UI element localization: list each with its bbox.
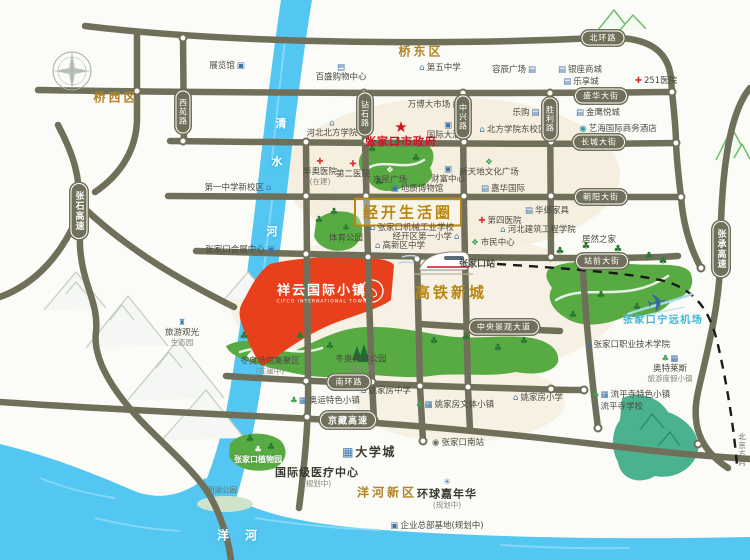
lexiang-city-icon-glyph: ▤	[563, 78, 571, 87]
hebei-north-college-label: 河北北方学院	[306, 128, 357, 138]
olympic-town-text: 奥运特色小镇	[309, 396, 360, 406]
xintiandi-culture-plaza: ❖新天地文化广场	[459, 159, 519, 178]
juran-home: 居然之家	[582, 235, 616, 245]
juran-home-label: 居然之家	[582, 235, 616, 245]
yaojiafang-primary-icon-glyph: ⌂	[513, 394, 518, 403]
ningyuan-airport-text: 张家口宁远机场	[623, 315, 704, 327]
tourism-eco-garden-text: 旅游观光生态园	[165, 328, 199, 347]
yinzuo-mall: ▤银座商城	[558, 65, 602, 75]
liupingsi-town: ♣▦流平寺特色小镇	[592, 390, 670, 400]
no2-hospital-icon-glyph: ✚	[349, 161, 356, 170]
shenghua-street: 盛华大街	[575, 89, 627, 104]
yaojiafang-culture-town-icon-glyph: ▦	[425, 401, 433, 410]
geology-museum-icon: ▣	[391, 185, 399, 194]
hospital-251-icon: ✚	[635, 77, 642, 86]
intl-hotel-icon: ▣	[444, 122, 452, 131]
rongchen-plaza-text: 容辰广场	[492, 65, 526, 75]
citizen-square-icon-glyph: ❖	[386, 167, 394, 176]
map-labels-layer: 祥云国际小镇 CIFCO INTERNATIONAL TOWN ✈ 桥西区桥东区…	[0, 0, 750, 560]
yaojiafang-primary: ⌂姚家房小学	[513, 393, 563, 403]
yihai-hotel-icon-glyph: ◉	[579, 125, 586, 134]
winter-olympic-forest-park: 冬奥森林公园(在建中)	[335, 354, 386, 373]
university-city-text: 大学城	[355, 445, 396, 459]
outlets-resort-town-icon-glyph: ♣	[662, 355, 670, 364]
liupingsi-school-label: 流平寺学校	[600, 402, 643, 412]
intl-medical-center-sub: (规划中)	[303, 479, 331, 488]
no4-hospital-icon: ✚	[478, 217, 485, 226]
shengli-road: 胜利路	[543, 98, 558, 141]
university-city-icon-glyph: ▦	[342, 446, 353, 458]
hebei-north-college: ⌂河北北方学院	[306, 120, 357, 139]
airplane-icon: ✈	[645, 289, 670, 317]
north-college-east-campus-icon-glyph: ⌂	[480, 126, 485, 135]
wealth-center-label: 财富中心	[431, 174, 465, 184]
wanbo-market-text: 万博大市场	[408, 100, 451, 110]
xintiandi-culture-plaza-icon-glyph: ❖	[485, 159, 493, 168]
river-label: 河	[245, 527, 259, 544]
jinying-mall-label: 金鹰悦城	[586, 108, 620, 118]
cifco-town-label: 祥云国际小镇 CIFCO INTERNATIONAL TOWN	[277, 280, 368, 305]
tree-icon: ♣	[520, 337, 529, 347]
parkson-mall-label: 百盛购物中心	[315, 72, 366, 82]
jinying-mall-icon-glyph: ▤	[576, 109, 584, 118]
river-label: 水	[272, 153, 283, 169]
zhanqian-street: 站前大街	[576, 254, 628, 269]
hospital-251-label: 251医院	[644, 76, 677, 86]
tree-icon: ♣	[494, 344, 503, 354]
yaojiafang-middle-school: ⌂姚家房中学	[361, 386, 411, 396]
citizen-center-text: 市民中心	[481, 238, 515, 248]
xiyuan-road: 西苑路	[176, 91, 191, 134]
yihai-hotel-label: 艺海国际商务酒店	[589, 124, 657, 134]
huaao-hospital-icon: ✚	[316, 158, 323, 167]
no2-hospital-icon: ✚	[349, 161, 356, 170]
liupingsi-town-icon: ♣▦	[592, 391, 609, 400]
tree-icon: ♣	[246, 435, 255, 445]
exhibition-hall-icon-glyph: ▣	[237, 62, 245, 71]
exhibition-hall: 展览馆▣	[209, 61, 245, 71]
tree-icon: ♣	[430, 337, 439, 347]
zjk-botanical-garden-icon-glyph: ♣	[254, 446, 262, 455]
no4-hospital-icon-glyph: ✚	[478, 217, 485, 226]
zjk-south-station-label: 张家口南站	[441, 438, 484, 448]
rongchen-plaza: 容辰广场▤	[492, 65, 536, 75]
yihai-hotel-icon: ◉	[579, 125, 586, 134]
beihuan-road: 北环路	[582, 31, 625, 46]
zjk-convention-center: 张家口会展中心▣	[205, 245, 275, 255]
jingkai-no1-primary-icon: ⌂	[454, 233, 459, 242]
outlets-resort-town-icon-glyph: ▦	[670, 355, 678, 364]
jiahua-international-text: 嘉华国际	[491, 184, 525, 194]
machinery-industry-school-icon: ⌂	[370, 224, 375, 233]
liupingsi-town-icon-glyph: ▦	[601, 391, 609, 400]
enterprise-hq-base-label: 企业总部基地(规划中)	[400, 521, 483, 531]
beijing-direction: 北京方向	[738, 433, 747, 467]
sports-park-icon-glyph: ♣	[342, 225, 350, 234]
wealth-center: ▣财富中心	[431, 166, 465, 185]
qiaoxi-district: 桥西区	[93, 89, 138, 106]
tree-icon: ♣	[633, 303, 642, 313]
jiahua-international-label: 嘉华国际	[491, 184, 525, 194]
enterprise-hq-base-icon: ▣	[390, 522, 398, 531]
zjk-botanical-garden-label: 张家口植物园	[234, 454, 282, 464]
no5-middle-school-icon: ⌂	[419, 64, 424, 73]
zjk-railway-station-label: 张家口站	[459, 260, 495, 271]
nanhuan-road: 南环路	[328, 375, 371, 390]
zjk-south-station-text: 张家口南站	[441, 438, 484, 448]
zjk-botanical-garden-icon: ♣	[254, 446, 262, 455]
tree-icon: ♣	[659, 257, 668, 267]
hsr-new-town: 高铁新城	[415, 282, 487, 303]
citizen-center-icon: ❖	[471, 239, 479, 248]
zjk-vocational-college-icon: ⌂	[586, 341, 591, 350]
zjk-botanical-garden-text: 张家口植物园	[234, 454, 282, 464]
wanbo-market-label: 万博大市场	[408, 100, 451, 110]
ningyuan-airport: 张家口宁远机场	[623, 315, 704, 327]
wanbo-market: 万博大市场▤	[408, 100, 461, 110]
tree-icon: ♣	[412, 154, 421, 164]
hebei-architecture-college-label: 河北建筑工程学院	[508, 225, 576, 235]
liupingsi-town-label: 流平寺特色小镇	[611, 390, 671, 400]
chaoyang-street: 朝阳大街	[575, 190, 627, 205]
outlets-resort-town-label: 奥特莱斯	[653, 364, 687, 374]
university-city-icon: ▦	[342, 446, 353, 458]
outlets-resort-town-text: 奥特莱斯旅游度假小镇	[648, 364, 693, 383]
river-label: 河	[267, 223, 278, 239]
tourism-eco-garden: ♜旅游观光生态园	[165, 319, 199, 347]
zjk-railway-station: 张家口站	[459, 260, 495, 271]
winter-olympic-venues: 冬奥场馆集聚区(在建中)	[240, 356, 300, 375]
xintiandi-culture-plaza-label: 新天地文化广场	[459, 167, 519, 177]
hebei-architecture-college-text: 河北建筑工程学院	[508, 225, 576, 235]
sports-park-text: 体育公园	[329, 233, 363, 243]
liupingsi-town-icon-glyph: ♣	[592, 391, 600, 400]
north-college-east-campus-text: 北方学院东校区	[487, 125, 547, 135]
olympic-town-icon-glyph: ♣	[290, 397, 298, 406]
jinying-mall: ▤金鹰悦城	[576, 108, 620, 118]
hebei-architecture-college-icon: ⌂	[500, 226, 505, 235]
yihai-hotel: ◉艺海国际商务酒店	[579, 124, 656, 134]
tourism-eco-garden-icon: ♜	[178, 319, 186, 328]
winter-olympic-venues-label: 冬奥场馆集聚区	[240, 356, 300, 366]
sports-park: ♣体育公园	[329, 225, 363, 244]
liupingsi-school-icon-glyph: ⌂	[593, 403, 598, 412]
tree-icon: ♣	[556, 247, 565, 257]
minghu-park: 明湖公园	[207, 486, 237, 495]
tree-icon: ♣	[645, 252, 654, 262]
central-landscape-avenue: 中央景观大道	[469, 320, 539, 335]
citizen-center: ❖市民中心	[471, 238, 515, 248]
citizen-center-icon-glyph: ❖	[471, 239, 479, 248]
cifco-town-english: CIFCO INTERNATIONAL TOWN	[277, 300, 368, 305]
zjk-vocational-college-text: 张家口职业技术学院	[593, 340, 670, 350]
huaye-furniture-icon: ▤	[525, 207, 533, 216]
gaoxin-middle-school-label: 高新区中学	[382, 241, 425, 251]
lexiang-city: ▤乐享城	[563, 77, 599, 87]
tree-icon: ♣	[326, 342, 335, 352]
zjk-convention-center-icon-glyph: ▣	[267, 246, 275, 255]
huaye-furniture: ▤华邺家具	[525, 206, 569, 216]
gaoxin-middle-school: ⌂高新区中学	[375, 241, 425, 251]
huaao-hospital: ✚华奥医院(在建)	[303, 158, 337, 186]
hospital-251-text: 251医院	[644, 76, 677, 86]
intl-medical-center: 国际级医疗中心(规划中)	[275, 466, 359, 488]
yaojiafang-primary-text: 姚家房小学	[520, 393, 563, 403]
beijing-direction-text: 北京方向	[738, 433, 747, 467]
zjk-south-station-icon: ◉	[432, 439, 439, 448]
zhangshi-expressway: 张石高速	[71, 183, 88, 239]
tourism-eco-garden-icon-glyph: ♜	[178, 319, 186, 328]
outlets-resort-town-sub: 旅游度假小镇	[648, 374, 693, 383]
geology-museum-label: 地质博物馆	[401, 184, 444, 194]
jinying-mall-text: 金鹰悦城	[586, 108, 620, 118]
no5-middle-school-icon-glyph: ⌂	[419, 64, 424, 73]
no1-middle-school-new-campus-icon: ⌂	[266, 184, 271, 193]
juran-home-text: 居然之家	[582, 235, 616, 245]
huaao-hospital-text: 华奥医院(在建)	[303, 167, 337, 186]
no1-middle-school-new-campus: 第一中学新校区⌂	[205, 183, 272, 193]
tesco-icon: ▤	[531, 109, 539, 118]
tesco: 乐购▤	[512, 108, 539, 118]
hebei-north-college-text: 河北北方学院	[306, 128, 357, 138]
geology-museum: ▣地质博物馆	[391, 184, 444, 194]
intl-medical-center-label: 国际级医疗中心	[275, 466, 359, 479]
tree-icon: ♣	[296, 332, 305, 342]
no1-middle-school-new-campus-text: 第一中学新校区	[205, 183, 265, 193]
tree-icon: ♣	[597, 291, 606, 301]
geology-museum-icon-glyph: ▣	[391, 185, 399, 194]
tesco-label: 乐购	[512, 108, 529, 118]
olympic-town: ♣▦奥运特色小镇	[290, 396, 360, 406]
no5-middle-school: ⌂第五中学	[419, 63, 460, 73]
lexiang-city-label: 乐享城	[573, 77, 599, 87]
liupingsi-school: ⌂流平寺学校	[593, 402, 643, 412]
yaojiafang-culture-town: ♣▦姚家房文体小镇	[416, 400, 494, 410]
rongchen-plaza-label: 容辰广场	[492, 65, 526, 75]
huaye-furniture-text: 华邺家具	[535, 206, 569, 216]
wealth-center-icon: ▣	[444, 166, 452, 175]
ningyuan-airport-label: 张家口宁远机场	[623, 315, 704, 327]
exhibition-hall-text: 展览馆	[209, 61, 235, 71]
tree-icon: ♣	[462, 333, 471, 343]
machinery-industry-school-icon-glyph: ⌂	[370, 224, 375, 233]
tourism-eco-garden-sub: 生态园	[171, 338, 194, 347]
minghu-park-label: 明湖公园	[207, 486, 237, 495]
global-carnival-sub: (规划中)	[433, 500, 461, 509]
liupingsi-town-text: 流平寺特色小镇	[611, 390, 671, 400]
xintiandi-culture-plaza-icon: ❖	[485, 159, 493, 168]
north-college-east-campus-icon: ⌂	[480, 126, 485, 135]
parkson-mall-text: 百盛购物中心	[315, 72, 366, 82]
global-carnival-icon-glyph: ✳	[443, 479, 450, 488]
enterprise-hq-base-icon-glyph: ▣	[390, 522, 398, 531]
winter-olympic-forest-park-sub: (在建中)	[347, 365, 375, 374]
hospital-251-icon-glyph: ✚	[635, 77, 642, 86]
zhangjiakou-location-map: 祥云国际小镇 CIFCO INTERNATIONAL TOWN ✈ 桥西区桥东区…	[0, 0, 750, 560]
zuanshi-road: 钻石路	[358, 93, 373, 136]
intl-medical-center-text: 国际级医疗中心(规划中)	[275, 466, 359, 488]
exhibition-hall-icon: ▣	[237, 62, 245, 71]
cifco-town-name: 祥云国际小镇	[277, 280, 368, 299]
zjk-convention-center-icon: ▣	[267, 246, 275, 255]
changcheng-street: 长城大街	[573, 135, 625, 150]
huaao-hospital-label: 华奥医院	[303, 167, 337, 177]
hebei-architecture-college-icon-glyph: ⌂	[500, 226, 505, 235]
river-label: 洋	[217, 527, 231, 544]
winter-olympic-venues-sub: (在建中)	[256, 367, 284, 376]
outlets-resort-town: ♣▦奥特莱斯旅游度假小镇	[648, 355, 693, 383]
qiaodong-district: 桥东区	[398, 43, 443, 60]
liupingsi-school-text: 流平寺学校	[600, 402, 643, 412]
enterprise-hq-base-text: 企业总部基地(规划中)	[400, 521, 483, 531]
winter-olympic-venues-text: 冬奥场馆集聚区(在建中)	[240, 356, 300, 375]
outlets-resort-town-icon: ♣▦	[662, 355, 679, 364]
zjk-botanical-garden: ♣张家口植物园	[234, 446, 282, 464]
yaojiafang-culture-town-icon: ♣▦	[416, 401, 433, 410]
global-carnival-icon: ✳	[443, 479, 450, 488]
yinzuo-mall-icon: ▤	[558, 66, 566, 75]
wealth-center-text: 财富中心	[431, 174, 465, 184]
zjk-railway-station-text: 张家口站	[459, 260, 495, 271]
exhibition-hall-label: 展览馆	[209, 61, 235, 71]
zhangcheng-expressway: 张承高速	[713, 221, 730, 277]
zjk-government-icon-glyph: ★	[394, 120, 407, 135]
tree-icon: ♣	[240, 332, 249, 342]
zjk-south-station-icon-glyph: ◉	[432, 439, 439, 448]
yaojiafang-middle-school-label: 姚家房中学	[368, 386, 411, 396]
liupingsi-school-icon: ⌂	[593, 403, 598, 412]
olympic-town-label: 奥运特色小镇	[309, 396, 360, 406]
winter-olympic-forest-park-text: 冬奥森林公园(在建中)	[335, 354, 386, 373]
huaao-hospital-sub: (在建)	[310, 177, 331, 186]
hebei-north-college-icon-glyph: ⌂	[329, 120, 334, 129]
no1-middle-school-new-campus-label: 第一中学新校区	[205, 183, 265, 193]
huaao-hospital-icon-glyph: ✚	[316, 158, 323, 167]
minghu-park-text: 明湖公园	[207, 486, 237, 495]
zjk-south-station: ◉张家口南站	[432, 438, 484, 448]
jiahua-international-icon: ▤	[481, 185, 489, 194]
yaojiafang-culture-town-icon-glyph: ♣	[416, 401, 424, 410]
olympic-town-icon-glyph: ▦	[299, 397, 307, 406]
global-carnival-label: 环球嘉年华	[417, 487, 477, 500]
north-college-east-campus: ⌂北方学院东校区	[480, 125, 547, 135]
tesco-icon-glyph: ▤	[531, 109, 539, 118]
zjk-convention-center-text: 张家口会展中心	[205, 245, 265, 255]
gaoxin-middle-school-icon-glyph: ⌂	[375, 242, 380, 251]
north-college-east-campus-label: 北方学院东校区	[487, 125, 547, 135]
lexiang-city-text: 乐享城	[573, 77, 599, 87]
citizen-square: ❖市民广场	[373, 167, 407, 186]
xintiandi-culture-plaza-text: 新天地文化广场	[459, 167, 519, 177]
zjk-convention-center-label: 张家口会展中心	[205, 245, 265, 255]
parkson-mall: ▤百盛购物中心	[315, 64, 366, 83]
global-carnival-text: 环球嘉年华(规划中)	[417, 487, 477, 509]
no2-hospital: ✚第二医院	[336, 161, 370, 180]
hospital-251: ✚251医院	[635, 76, 677, 86]
no2-hospital-text: 第二医院	[336, 169, 370, 179]
sports-park-label: 体育公园	[329, 233, 363, 243]
lexiang-city-icon: ▤	[563, 78, 571, 87]
parkson-mall-icon-glyph: ▤	[337, 64, 345, 73]
rongchen-plaza-icon-glyph: ▤	[528, 66, 536, 75]
huaye-furniture-label: 华邺家具	[535, 206, 569, 216]
geology-museum-text: 地质博物馆	[401, 184, 444, 194]
yinzuo-mall-icon-glyph: ▤	[558, 66, 566, 75]
yaojiafang-culture-town-label: 姚家房文体小镇	[435, 400, 495, 410]
yanghe-new-district: 洋河新区	[357, 484, 417, 501]
hebei-north-college-icon: ⌂	[329, 120, 334, 129]
yinzuo-mall-label: 银座商城	[568, 65, 602, 75]
hebei-architecture-college: ⌂河北建筑工程学院	[500, 225, 575, 235]
jiahua-international-icon-glyph: ▤	[481, 185, 489, 194]
jingkai-no1-primary-icon-glyph: ⌂	[454, 233, 459, 242]
citizen-center-label: 市民中心	[481, 238, 515, 248]
tree-icon: ♣	[330, 208, 339, 218]
intl-hotel-icon-glyph: ▣	[444, 122, 452, 131]
zjk-vocational-college: ⌂张家口职业技术学院	[586, 340, 670, 350]
winter-olympic-forest-park-label: 冬奥森林公园	[335, 354, 386, 364]
no5-middle-school-label: 第五中学	[427, 63, 461, 73]
university-city-label: 大学城	[355, 445, 396, 459]
yihai-hotel-text: 艺海国际商务酒店	[589, 124, 657, 134]
parkson-mall-icon: ▤	[337, 64, 345, 73]
sports-park-icon: ♣	[342, 225, 350, 234]
citizen-square-icon: ❖	[386, 167, 394, 176]
olympic-town-icon: ♣▦	[290, 397, 307, 406]
no1-middle-school-new-campus-icon-glyph: ⌂	[266, 184, 271, 193]
yaojiafang-middle-school-text: 姚家房中学	[368, 386, 411, 396]
yaojiafang-culture-town-text: 姚家房文体小镇	[435, 400, 495, 410]
rongchen-plaza-icon: ▤	[528, 66, 536, 75]
huaye-furniture-icon-glyph: ▤	[525, 207, 533, 216]
jinying-mall-icon: ▤	[576, 109, 584, 118]
yinzuo-mall-text: 银座商城	[568, 65, 602, 75]
tree-icon: ♣	[569, 311, 578, 321]
yaojiafang-primary-icon: ⌂	[513, 394, 518, 403]
enterprise-hq-base: ▣企业总部基地(规划中)	[390, 521, 483, 531]
zjk-government-icon: ★	[394, 120, 407, 135]
tree-icon: ♣	[315, 216, 324, 226]
no2-hospital-label: 第二医院	[336, 169, 370, 179]
river-label: 清	[276, 115, 287, 131]
gaoxin-middle-school-text: 高新区中学	[382, 241, 425, 251]
wealth-center-icon-glyph: ▣	[444, 166, 452, 175]
zjk-vocational-college-icon-glyph: ⌂	[586, 341, 591, 350]
zjk-vocational-college-label: 张家口职业技术学院	[593, 340, 670, 350]
jingzang-expressway: 京藏高速	[320, 412, 376, 429]
university-city: ▦大学城	[342, 445, 396, 459]
gaoxin-middle-school-icon: ⌂	[375, 242, 380, 251]
jiahua-international: ▤嘉华国际	[481, 184, 525, 194]
tesco-text: 乐购	[512, 108, 529, 118]
tourism-eco-garden-label: 旅游观光	[165, 328, 199, 338]
yaojiafang-primary-label: 姚家房小学	[520, 393, 563, 403]
zhongxing-road: 中兴路	[456, 96, 471, 139]
beijing-direction-label: 北京方向	[738, 433, 747, 467]
no5-middle-school-text: 第五中学	[427, 63, 461, 73]
global-carnival: ✳环球嘉年华(规划中)	[417, 479, 477, 510]
